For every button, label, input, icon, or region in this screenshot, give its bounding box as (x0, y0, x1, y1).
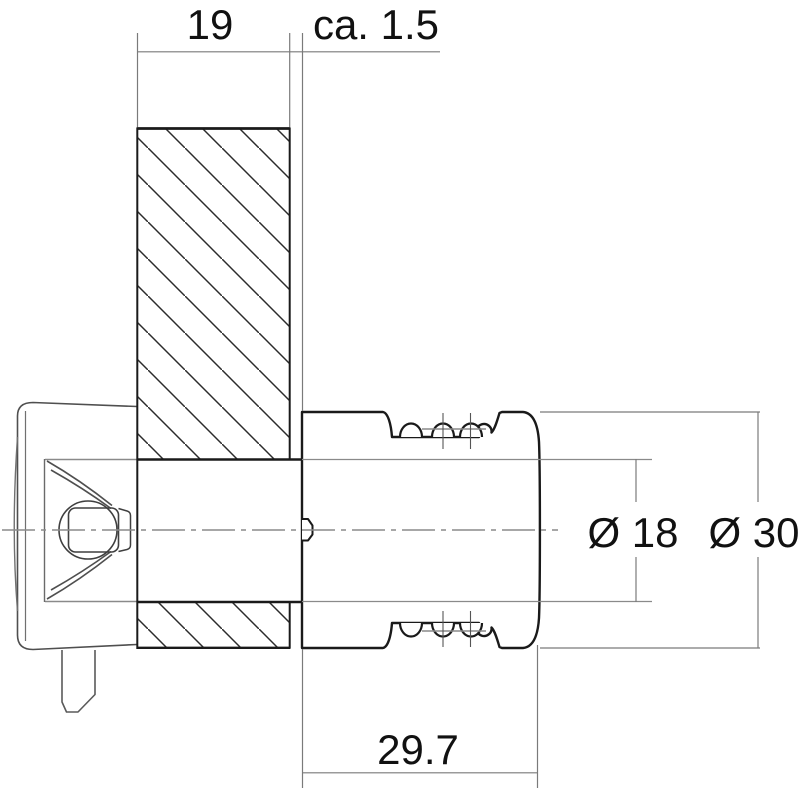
panel-hatch-lower (138, 603, 289, 648)
dim-panel-thickness-label: 19 (187, 1, 234, 48)
spring-coils-top (400, 423, 482, 437)
dim-front-protrusion-label: ca. 1.5 (313, 1, 439, 48)
panel-hatch-upper (138, 129, 289, 459)
background (0, 0, 800, 791)
spring-coils-bottom (400, 623, 482, 637)
dim-inner-diameter-label: Ø 18 (587, 509, 678, 556)
technical-drawing: 19 ca. 1.5 29.7 Ø 18 Ø 30 (0, 0, 800, 791)
technical-drawing-page: 19 ca. 1.5 29.7 Ø 18 Ø 30 (0, 0, 800, 791)
dim-outer-diameter-label: Ø 30 (708, 509, 799, 556)
dim-housing-length-label: 29.7 (377, 726, 459, 773)
